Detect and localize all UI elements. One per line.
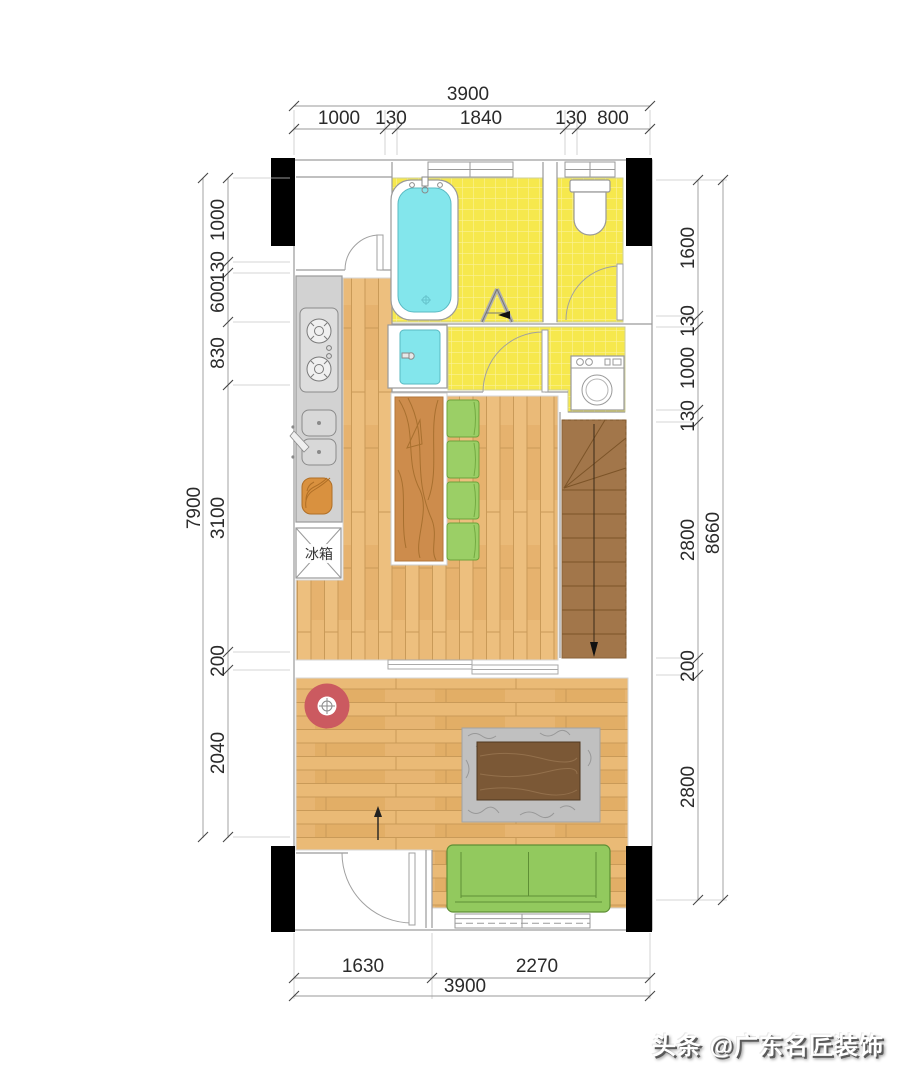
stairs	[562, 420, 626, 658]
tub-spout	[422, 177, 428, 186]
dim-right-seg: 200	[678, 650, 699, 682]
toilet-door-leaf	[617, 264, 623, 320]
round-stool	[305, 684, 350, 729]
wall-block-bottom-left	[271, 846, 295, 932]
kitchen-counter	[290, 276, 342, 522]
dim-right-seg: 130	[678, 400, 699, 432]
dim-right-total: 8660	[703, 512, 724, 554]
dining-table	[391, 393, 447, 565]
bathtub	[391, 177, 458, 320]
toilet	[570, 180, 610, 235]
dim-left-seg: 600	[208, 281, 229, 313]
dim-top-seg: 1840	[460, 108, 502, 129]
dim-left-seg: 2040	[208, 732, 229, 774]
dim-bottom-total: 3900	[444, 976, 486, 997]
vanity-sink	[388, 325, 447, 388]
cutting-board	[302, 478, 332, 514]
floorplan-drawing: 冰箱	[0, 0, 900, 1080]
dim-left-total: 7900	[184, 487, 205, 529]
bathroom-door-leaf	[542, 330, 548, 392]
coffee-table	[477, 742, 580, 800]
fridge: 冰箱	[296, 528, 341, 578]
dim-top-seg: 1000	[318, 108, 360, 129]
dim-left-seg: 830	[208, 337, 229, 369]
watermark: 头条 @广东名匠装饰	[652, 1026, 884, 1061]
dim-bottom-seg: 2270	[516, 956, 558, 977]
dim-left-seg: 200	[208, 645, 229, 677]
dim-right-seg: 1000	[678, 347, 699, 389]
fridge-label: 冰箱	[305, 547, 333, 563]
top-windows	[428, 162, 615, 177]
wall-block-top-left	[271, 158, 295, 246]
dim-top-seg: 130	[555, 108, 587, 129]
dim-right-seg: 130	[678, 305, 699, 337]
dim-top-seg: 800	[597, 108, 629, 129]
floorplan-page: 冰箱	[0, 0, 900, 1080]
dim-right-seg: 1600	[678, 227, 699, 269]
sofa	[447, 845, 610, 912]
entry-door-leaf	[409, 853, 415, 925]
rug	[462, 728, 600, 822]
dim-right-seg: 2800	[678, 766, 699, 808]
hall-door-leaf	[377, 235, 383, 270]
mid-partition	[388, 660, 558, 674]
bottom-window	[455, 914, 590, 928]
dim-top-total: 3900	[447, 84, 489, 105]
wall-block-top-right	[626, 158, 652, 246]
dim-left-seg: 130	[208, 251, 229, 283]
entry-door-arc	[342, 853, 412, 923]
dim-left-seg: 1000	[208, 199, 229, 241]
dim-bottom-seg: 1630	[342, 956, 384, 977]
hall-door-arc	[345, 235, 380, 270]
cooktop	[300, 308, 338, 392]
wall-block-bottom-right	[626, 846, 652, 932]
dim-top-seg: 130	[375, 108, 407, 129]
dim-left-seg: 3100	[208, 497, 229, 539]
dim-right-seg: 2800	[678, 519, 699, 561]
washing-machine	[571, 356, 624, 410]
